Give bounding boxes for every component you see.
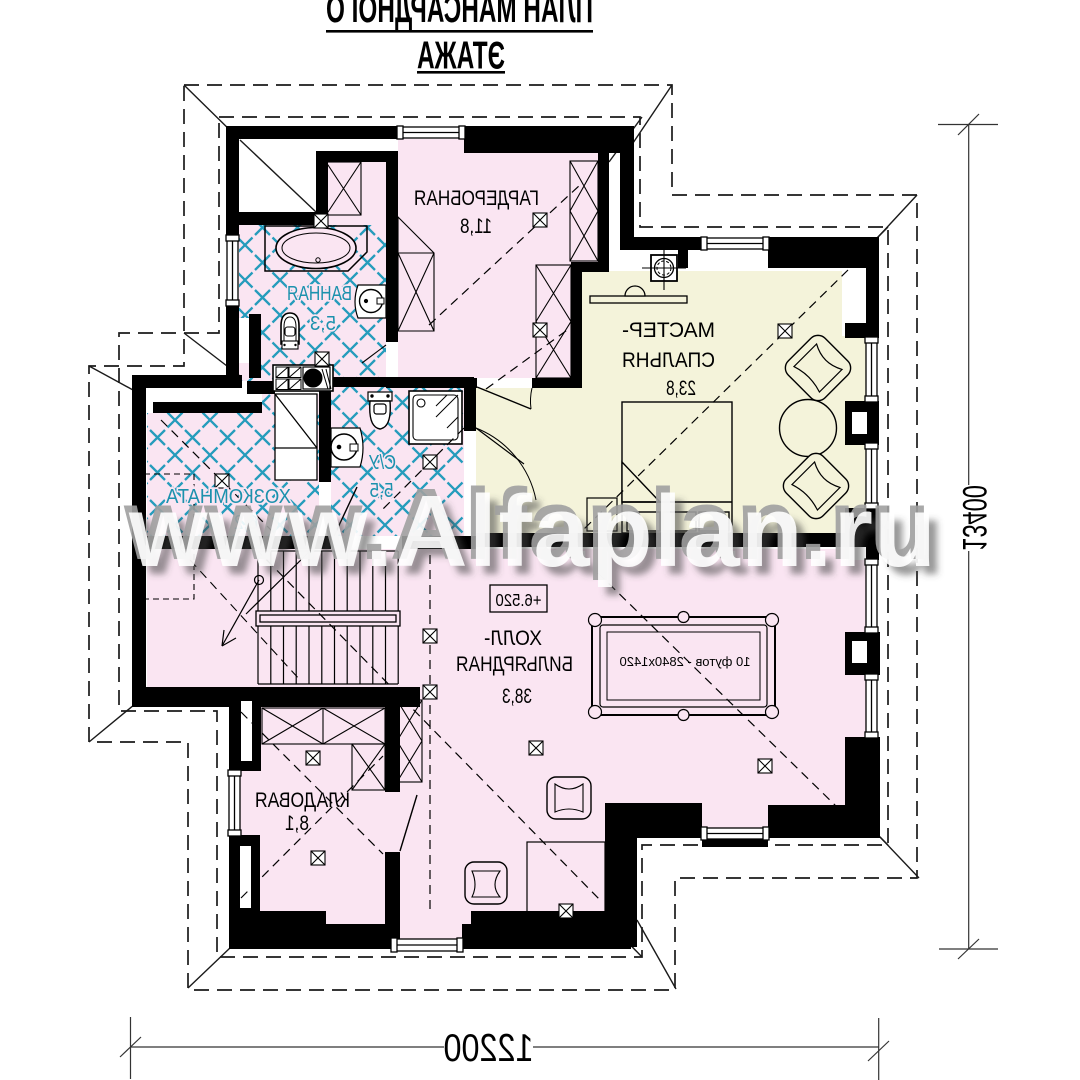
svg-text:СПАЛЬНЯ: СПАЛЬНЯ: [622, 349, 715, 372]
svg-text:КЛАДОВАЯ: КЛАДОВАЯ: [255, 789, 350, 812]
svg-text:8,1: 8,1: [285, 812, 309, 835]
svg-text:10 футов - 2840х1420: 10 футов - 2840х1420: [620, 654, 751, 669]
svg-text:ХОЛЛ-: ХОЛЛ-: [484, 627, 542, 650]
svg-text:ВАННАЯ: ВАННАЯ: [287, 283, 352, 305]
svg-text:12200: 12200: [444, 1027, 534, 1070]
svg-text:38,3: 38,3: [502, 685, 532, 708]
svg-text:www.Alfaplan.ru: www.Alfaplan.ru: [128, 476, 936, 588]
svg-text:ГАРДЕРОБНАЯ: ГАРДЕРОБНАЯ: [414, 187, 539, 210]
svg-text:23,8: 23,8: [666, 377, 696, 400]
svg-text:13400: 13400: [955, 485, 993, 551]
svg-text:ПЛАН МАНСАРДНОГО: ПЛАН МАНСАРДНОГО: [326, 0, 593, 31]
svg-text:11,8: 11,8: [460, 215, 492, 238]
svg-text:5,3: 5,3: [310, 313, 336, 335]
svg-text:МАСТЕР-: МАСТЕР-: [622, 319, 715, 342]
svg-text:БИЛЬЯРДНАЯ: БИЛЬЯРДНАЯ: [456, 653, 573, 676]
